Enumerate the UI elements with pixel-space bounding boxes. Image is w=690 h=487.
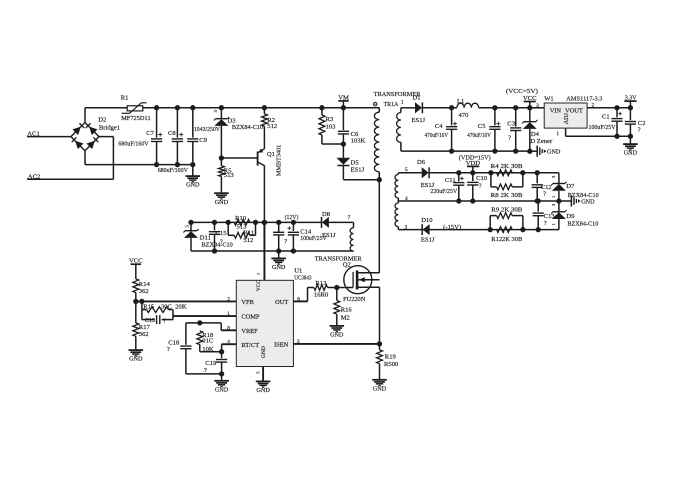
svg-text:GND: GND [256, 387, 270, 394]
svg-text:UC3843: UC3843 [294, 274, 312, 281]
svg-text:4: 4 [405, 196, 408, 202]
svg-text:16R0: 16R0 [314, 292, 329, 299]
svg-text:MF725D11: MF725D11 [121, 115, 151, 122]
svg-text:?: ? [508, 134, 511, 141]
svg-text:?: ? [479, 183, 482, 190]
svg-text:D7: D7 [566, 183, 575, 190]
svg-text:R13: R13 [315, 280, 327, 287]
svg-text:?: ? [220, 238, 223, 245]
svg-text:BZX84-C10: BZX84-C10 [202, 242, 234, 249]
svg-text:R122K 30B: R122K 30B [491, 236, 523, 243]
svg-text:GND: GND [129, 356, 143, 363]
svg-text:C10: C10 [476, 175, 488, 182]
svg-text:R10: R10 [235, 215, 247, 222]
svg-text:362: 362 [139, 288, 149, 295]
svg-text:(VCC=5V): (VCC=5V) [506, 88, 538, 95]
svg-text:R3: R3 [326, 116, 334, 123]
svg-text:R19: R19 [385, 354, 397, 361]
svg-text:(12V): (12V) [285, 214, 299, 221]
svg-text:C8: C8 [168, 130, 176, 137]
svg-text:470uF/16V: 470uF/16V [467, 132, 491, 139]
svg-text:470: 470 [459, 112, 470, 119]
svg-text:8: 8 [227, 325, 230, 331]
svg-text:VCC: VCC [256, 280, 262, 292]
svg-text:?: ? [163, 318, 166, 325]
svg-text:2: 2 [591, 103, 594, 109]
svg-text:C18: C18 [168, 339, 180, 346]
svg-text:FU220N: FU220N [343, 296, 365, 303]
svg-text:Q2: Q2 [343, 261, 351, 268]
svg-text:D8: D8 [322, 211, 331, 218]
svg-text:C4: C4 [435, 123, 443, 130]
svg-text:GND: GND [215, 199, 229, 206]
svg-text:4: 4 [227, 339, 230, 345]
svg-text:100uF/25V: 100uF/25V [589, 124, 616, 131]
svg-text:R11: R11 [243, 230, 254, 237]
svg-text:R16: R16 [341, 307, 353, 314]
svg-text:680uF/160V: 680uF/160V [158, 167, 189, 174]
svg-text:D2: D2 [98, 117, 106, 124]
svg-text:BZX84-C10: BZX84-C10 [567, 221, 599, 228]
svg-text:R500: R500 [384, 361, 399, 368]
svg-text:AMS1117-3.3: AMS1117-3.3 [566, 96, 603, 103]
svg-text:D1: D1 [413, 95, 421, 102]
svg-text:103: 103 [326, 123, 337, 130]
svg-text:ES1J: ES1J [322, 232, 336, 239]
svg-text:R9 2K 30B: R9 2K 30B [491, 206, 523, 213]
svg-text:?: ? [543, 191, 546, 198]
svg-text:Q1: Q1 [267, 151, 275, 158]
svg-text:BZX84-C10: BZX84-C10 [232, 124, 264, 131]
svg-text:OUT: OUT [275, 299, 288, 306]
svg-text:TRANSFORMER: TRANSFORMER [315, 256, 362, 263]
svg-text:103K: 103K [351, 137, 366, 144]
svg-text:ES1J: ES1J [412, 117, 426, 124]
svg-text:TR1A: TR1A [384, 101, 399, 108]
svg-text:W1: W1 [544, 96, 554, 103]
svg-text:?: ? [204, 367, 207, 374]
svg-text:D Zener: D Zener [530, 138, 553, 145]
svg-text:C1: C1 [602, 113, 610, 120]
svg-text:?: ? [638, 127, 641, 134]
svg-text:30C: 30C [161, 303, 173, 310]
svg-text:1: 1 [556, 131, 559, 137]
svg-text:ES1J: ES1J [421, 236, 435, 243]
svg-text:GND: GND [373, 385, 387, 392]
svg-text:R4 2K 30B: R4 2K 30B [491, 163, 524, 170]
svg-text:D11: D11 [200, 235, 211, 242]
svg-text:?: ? [544, 220, 547, 227]
svg-text:680uF/160V: 680uF/160V [118, 140, 149, 147]
svg-text:20K: 20K [175, 303, 187, 310]
svg-text:L1: L1 [457, 98, 464, 105]
svg-text:(-15V): (-15V) [443, 224, 461, 231]
svg-text:GND: GND [624, 150, 638, 157]
svg-text:ISEN: ISEN [274, 342, 289, 349]
svg-text:D10: D10 [421, 217, 433, 224]
svg-text:01C: 01C [202, 338, 214, 345]
svg-text:C13: C13 [145, 317, 155, 324]
svg-text:M2: M2 [341, 315, 350, 322]
svg-text:VFB: VFB [241, 299, 253, 306]
svg-text:C15: C15 [216, 230, 228, 237]
svg-text:5: 5 [405, 167, 408, 173]
svg-text:C7: C7 [146, 130, 154, 137]
svg-text:D6: D6 [417, 159, 426, 166]
svg-text:VREF: VREF [241, 328, 258, 335]
svg-text:GND: GND [261, 346, 267, 358]
svg-text:ES1J: ES1J [351, 166, 365, 173]
svg-text:?: ? [167, 346, 170, 353]
svg-text:GND: GND [186, 182, 200, 189]
svg-text:C19: C19 [205, 360, 217, 367]
svg-text:512: 512 [267, 123, 277, 130]
svg-text:GND: GND [581, 198, 595, 205]
svg-text:D9: D9 [566, 213, 575, 220]
svg-text:R8 2K 30B: R8 2K 30B [491, 192, 524, 199]
svg-text:ADJ: ADJ [564, 113, 570, 125]
svg-text:470uF/16V: 470uF/16V [425, 132, 449, 139]
svg-text:COMP: COMP [241, 314, 260, 321]
svg-text:1: 1 [401, 99, 404, 105]
svg-text:GND: GND [547, 149, 561, 156]
svg-text:512: 512 [243, 237, 253, 244]
svg-text:?: ? [284, 238, 287, 245]
svg-text:7: 7 [348, 215, 351, 221]
svg-text:R1: R1 [121, 94, 129, 101]
svg-text:C11: C11 [445, 177, 456, 184]
svg-text:1: 1 [227, 311, 230, 317]
svg-text:Bridge1: Bridge1 [99, 124, 120, 131]
svg-text:D4: D4 [531, 131, 540, 138]
svg-text:R15: R15 [143, 303, 155, 310]
svg-text:362: 362 [139, 331, 149, 338]
svg-text:MMBT3401: MMBT3401 [276, 145, 283, 177]
svg-text:3: 3 [405, 225, 408, 231]
svg-text:220uF/25V: 220uF/25V [430, 188, 457, 195]
svg-text:C3: C3 [507, 121, 515, 128]
svg-text:GND: GND [215, 386, 229, 393]
svg-text:C5: C5 [478, 123, 486, 130]
svg-text:C9: C9 [199, 137, 207, 144]
svg-text:GND: GND [272, 264, 286, 271]
svg-text:1043/250V: 1043/250V [194, 126, 220, 133]
svg-text:513: 513 [224, 172, 235, 179]
svg-text:GND: GND [330, 332, 344, 339]
svg-text:2: 2 [227, 296, 230, 302]
svg-text:RT/CT: RT/CT [241, 342, 259, 349]
svg-text:VIN: VIN [550, 108, 562, 115]
